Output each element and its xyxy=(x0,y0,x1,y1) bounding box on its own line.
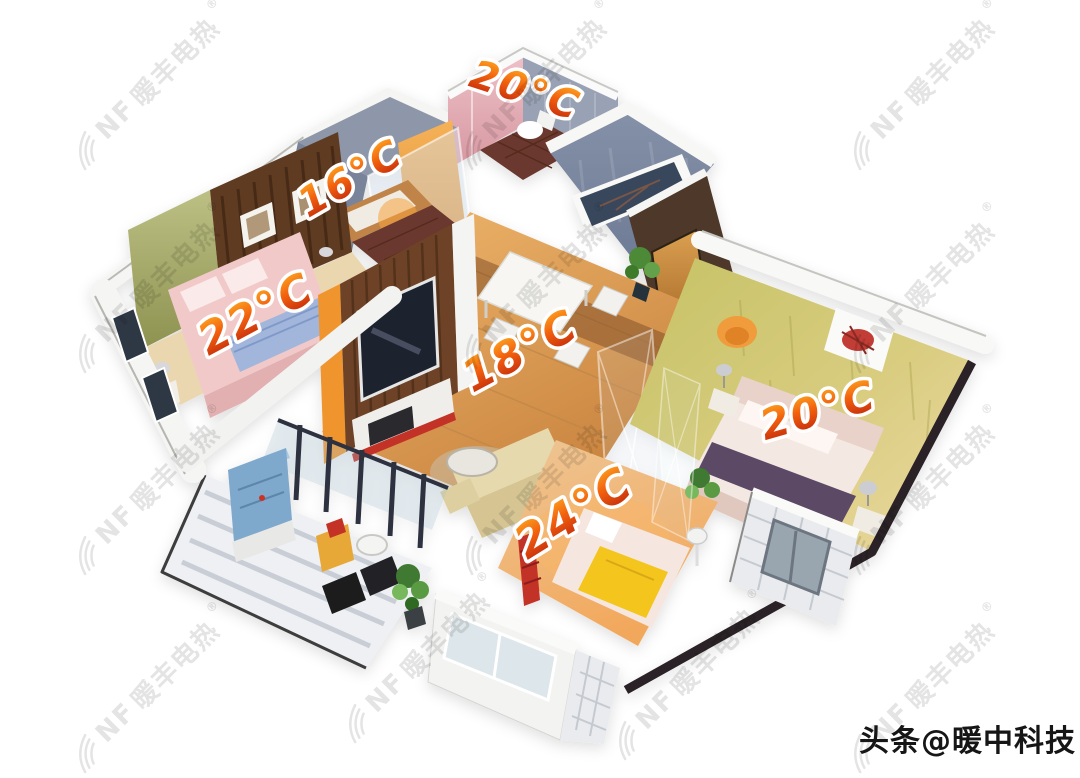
house-illustration: 20°C 16°C 22°C 18°C 24°C 20°C xyxy=(95,48,986,744)
table-lamp xyxy=(319,247,333,257)
toilet xyxy=(517,121,543,139)
credit-text: 头条@暖中科技 xyxy=(859,716,1076,760)
floor-lamp xyxy=(687,528,707,544)
coffee-table xyxy=(447,448,497,476)
screenshot-root: { "watermark": { "logo_icon": "fan-swirl… xyxy=(0,0,1080,778)
table-lamp xyxy=(859,481,877,495)
stool xyxy=(357,535,387,555)
floorplan-illustration: 20°C 16°C 22°C 18°C 24°C 20°C xyxy=(0,0,1080,778)
plant-pot xyxy=(404,606,426,630)
table-lamp xyxy=(716,364,732,376)
